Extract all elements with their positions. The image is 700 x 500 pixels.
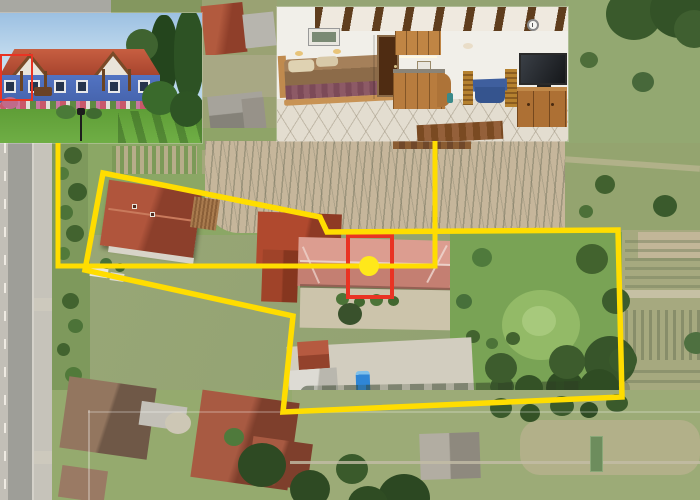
decor — [395, 31, 441, 55]
decor — [261, 249, 299, 302]
property-aerial-composite — [0, 0, 700, 500]
tree — [58, 205, 73, 220]
tree — [174, 13, 202, 101]
decor — [54, 80, 66, 93]
coffee-table — [417, 121, 504, 141]
decor — [128, 69, 131, 91]
decor — [89, 267, 108, 278]
tree — [447, 93, 453, 103]
tree — [576, 244, 608, 274]
decor — [475, 87, 505, 103]
neighbor-parcels-bottom — [52, 390, 700, 500]
decor — [20, 71, 23, 91]
lamp-post — [80, 113, 82, 141]
tree — [579, 205, 593, 218]
field-top-right — [566, 0, 700, 146]
meadow-top-right — [565, 143, 700, 233]
decor — [132, 204, 137, 209]
decor — [110, 272, 125, 282]
street[interactable] — [0, 143, 52, 500]
tree — [224, 428, 244, 446]
decor — [203, 55, 277, 97]
tree — [64, 147, 82, 164]
picture-frame — [309, 29, 339, 45]
wall-clock — [527, 19, 539, 31]
tree — [336, 454, 368, 484]
tv-screen — [519, 53, 567, 85]
decor — [102, 69, 105, 91]
tree — [56, 167, 69, 180]
tree — [57, 247, 70, 260]
tree — [632, 72, 654, 92]
street-top-strip — [0, 0, 202, 14]
neighbor-yard-top — [202, 0, 277, 143]
tree — [674, 10, 700, 48]
tree — [472, 248, 492, 267]
decor — [4, 80, 16, 93]
decor — [316, 56, 338, 67]
decor — [288, 59, 315, 72]
porch-bench — [34, 87, 52, 96]
tree — [370, 294, 383, 306]
courtyard-buildings — [250, 205, 470, 340]
neighbor-house-roof-3 — [58, 465, 108, 500]
interior-photo-inset[interactable] — [277, 7, 568, 141]
tv-cabinet — [517, 87, 567, 127]
decor — [625, 290, 700, 298]
tree — [602, 288, 630, 314]
decor — [520, 420, 700, 475]
decor — [34, 451, 52, 464]
tree — [238, 443, 286, 487]
decor — [34, 143, 52, 500]
tree — [115, 263, 125, 272]
grey-barn-roof — [419, 432, 481, 480]
tree — [56, 105, 76, 119]
decor — [34, 298, 52, 311]
tree — [165, 412, 191, 434]
decor — [590, 436, 603, 472]
tree — [551, 103, 554, 106]
tree — [68, 183, 87, 201]
decor — [373, 35, 375, 99]
decor — [532, 23, 533, 27]
decor — [290, 461, 700, 464]
dining-set — [461, 67, 523, 109]
decor — [77, 108, 85, 115]
tree — [580, 52, 598, 68]
tree — [490, 398, 512, 418]
tree — [550, 396, 574, 416]
kitchen — [393, 29, 457, 109]
decor — [201, 2, 248, 56]
decor — [88, 410, 90, 500]
tree — [170, 91, 202, 127]
tree — [66, 225, 84, 242]
tree — [388, 296, 399, 306]
tree — [595, 175, 615, 194]
decor — [463, 71, 473, 105]
decor — [88, 411, 700, 413]
tree — [86, 108, 102, 119]
tree — [580, 402, 598, 418]
tree — [485, 353, 517, 383]
tree — [653, 195, 677, 217]
tree — [456, 294, 472, 309]
tree — [609, 347, 637, 373]
decor — [8, 143, 34, 500]
decor — [242, 11, 276, 48]
tv-unit — [515, 19, 568, 129]
barn-roof-strip — [393, 140, 471, 149]
decor — [108, 80, 120, 93]
tree — [338, 303, 362, 325]
decor — [241, 97, 266, 131]
tree — [463, 43, 473, 49]
pergola — [190, 196, 220, 230]
tree — [522, 306, 556, 336]
tree — [290, 470, 330, 500]
tree — [549, 345, 585, 379]
exterior-photo-inset[interactable] — [0, 13, 202, 143]
red-shed-roof — [297, 340, 330, 370]
tree — [520, 404, 540, 422]
decor — [565, 156, 700, 171]
tree — [527, 103, 530, 106]
decor — [399, 56, 437, 58]
decor — [76, 80, 88, 93]
tree — [100, 258, 112, 269]
tree — [57, 343, 70, 356]
tree — [62, 293, 79, 309]
decor — [150, 212, 155, 217]
tree — [68, 319, 83, 333]
decor — [4, 143, 6, 500]
tree — [2, 97, 18, 109]
tree — [606, 394, 628, 412]
